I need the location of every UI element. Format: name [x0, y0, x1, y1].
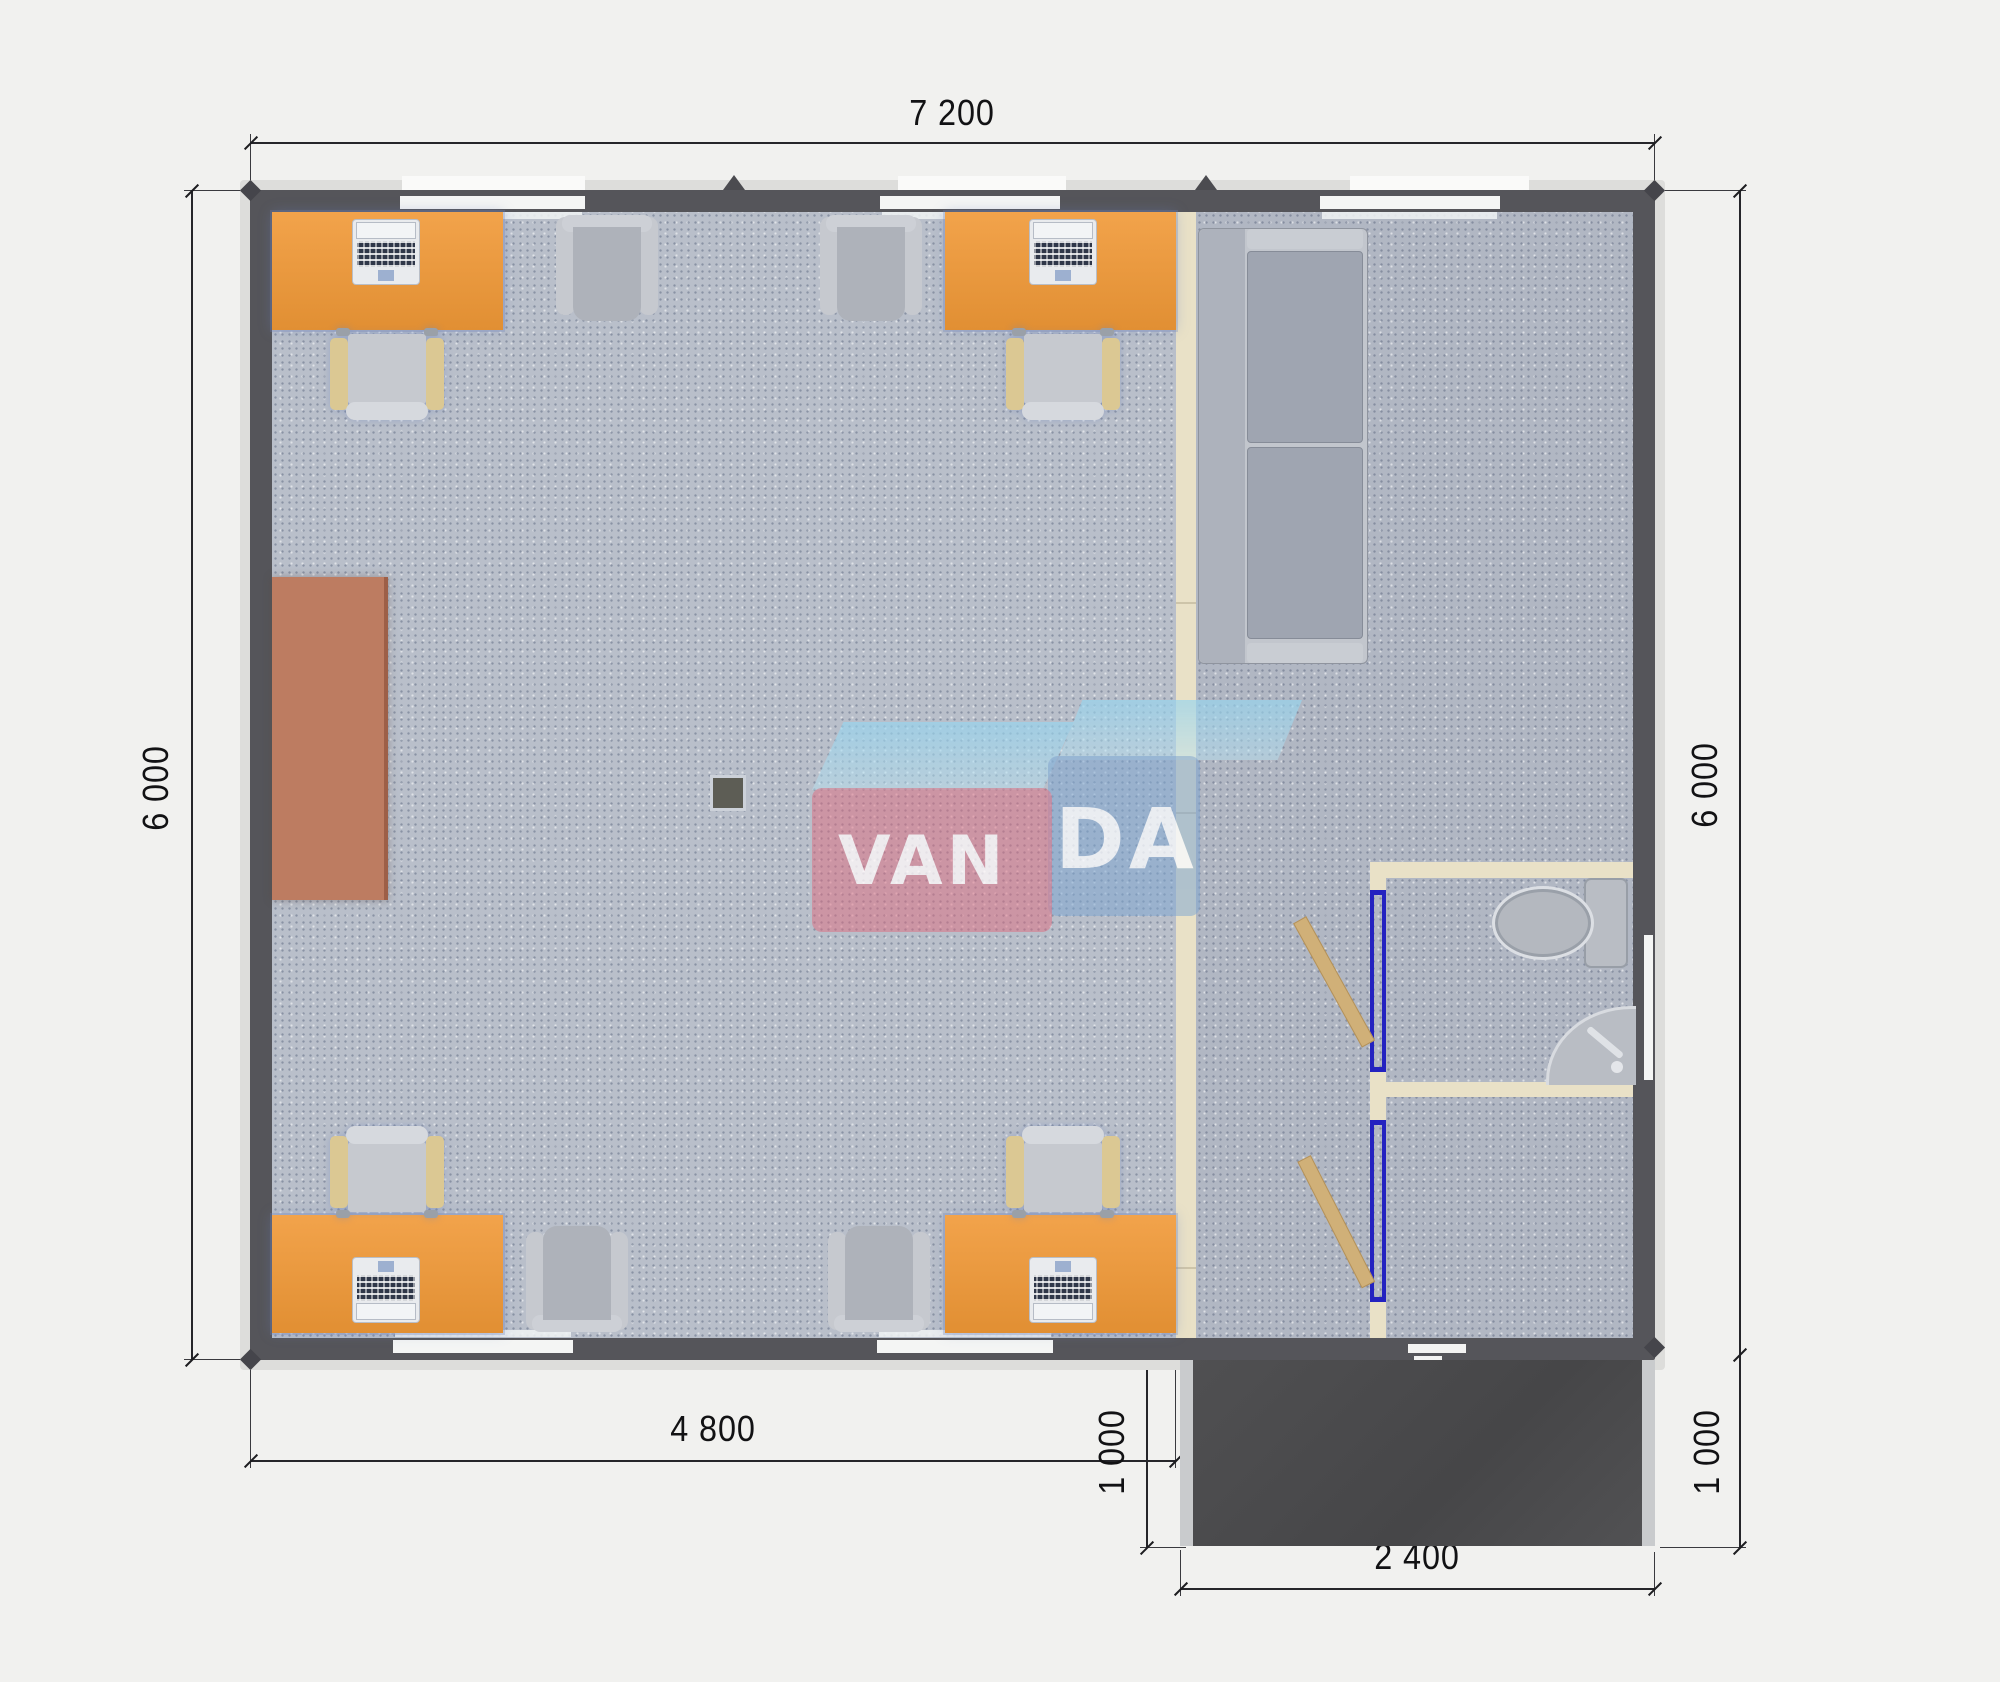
chair-arm — [1102, 338, 1120, 410]
panel-joint — [1176, 812, 1196, 814]
laptop-keyboard — [1034, 241, 1092, 267]
partition-wall-main — [1176, 212, 1196, 1338]
entrance-door-threshold — [1408, 1344, 1466, 1353]
bathroom-wall-top — [1370, 862, 1633, 878]
laptop-icon — [353, 1258, 419, 1322]
eave-highlight — [1350, 176, 1529, 190]
dim-label-office-width: 4 800 — [670, 1408, 756, 1450]
laptop-trackpad — [378, 270, 394, 281]
chair-arm — [426, 338, 444, 410]
faucet — [1586, 1026, 1624, 1060]
dim-line-top — [250, 142, 1655, 144]
laptop-icon — [353, 220, 419, 284]
extension-line — [1660, 1547, 1746, 1548]
door-frame-blue — [1370, 890, 1374, 1072]
armchair — [526, 1226, 628, 1332]
extension-line — [1175, 1366, 1176, 1468]
dim-label-porch-depth-right: 1 000 — [1686, 1409, 1728, 1495]
armchair — [820, 215, 922, 321]
window-sill — [1322, 212, 1497, 219]
laptop-screen — [1033, 1303, 1093, 1320]
caster — [424, 328, 438, 336]
dim-label-overall-width: 7 200 — [909, 92, 995, 134]
chair-back — [1022, 402, 1104, 420]
chair-arm — [1006, 1136, 1024, 1208]
caster — [1012, 1210, 1026, 1218]
extension-line — [1660, 190, 1746, 191]
desk-bottom-left — [272, 1215, 503, 1333]
door-frame-blue — [1382, 1120, 1386, 1302]
panel-joint — [1176, 602, 1196, 604]
dim-line-left — [191, 190, 193, 1360]
eave-highlight — [402, 176, 585, 190]
laptop-keyboard — [357, 241, 415, 267]
dim-label-right-height: 6 000 — [1684, 742, 1726, 828]
caster — [336, 328, 350, 336]
porch-edge — [1180, 1360, 1193, 1546]
office-chair — [322, 1126, 452, 1212]
laptop-keyboard — [1034, 1275, 1092, 1301]
dim-line-office-width — [250, 1460, 1176, 1462]
sofa-cushion — [1247, 447, 1363, 639]
chair-arm — [1006, 338, 1024, 410]
chair-seat — [348, 334, 426, 404]
office-chair — [998, 334, 1128, 420]
laptop-trackpad — [1055, 1261, 1071, 1272]
dim-line-right — [1739, 190, 1741, 1355]
chair-arm — [330, 338, 348, 410]
desk-bottom-right — [945, 1215, 1176, 1333]
sofa-back — [1199, 229, 1245, 663]
chair-back — [1022, 1126, 1104, 1144]
office-chair — [322, 334, 452, 420]
caster — [1100, 1210, 1114, 1218]
eave-highlight — [898, 176, 1066, 190]
extension-line — [250, 1366, 251, 1468]
caster — [336, 1210, 350, 1218]
laptop-trackpad — [378, 1261, 394, 1272]
porch-edge — [1642, 1360, 1655, 1546]
chair-seat — [1024, 334, 1102, 404]
dim-label-left-height: 6 000 — [135, 745, 177, 831]
entrance-porch — [1180, 1360, 1655, 1546]
dim-line-porch-width — [1180, 1588, 1655, 1590]
side-table — [272, 577, 388, 900]
door-frame-blue — [1382, 890, 1386, 1072]
dim-label-porch-depth-left: 1 000 — [1091, 1409, 1133, 1495]
floor-drain — [710, 775, 746, 811]
office-chair — [998, 1126, 1128, 1212]
chair-back — [346, 402, 428, 420]
window-bottom-2 — [877, 1340, 1053, 1353]
armchair-seat — [573, 227, 641, 321]
chair-seat — [1024, 1142, 1102, 1212]
armchair — [828, 1226, 930, 1332]
window-top-2 — [880, 196, 1060, 209]
caster — [1012, 328, 1026, 336]
laptop-screen — [356, 222, 416, 239]
laptop-icon — [1030, 220, 1096, 284]
laptop-keyboard — [357, 1275, 415, 1301]
armchair-seat — [543, 1226, 611, 1320]
laptop-trackpad — [1055, 270, 1071, 281]
window-top-1 — [400, 196, 585, 209]
sofa — [1198, 228, 1368, 664]
armchair — [556, 215, 658, 321]
desk-top-left — [272, 212, 503, 330]
laptop-icon — [1030, 1258, 1096, 1322]
sofa-armrest — [1247, 229, 1363, 249]
module-joint-arrow — [723, 175, 745, 190]
chair-seat — [348, 1142, 426, 1212]
laptop-screen — [1033, 222, 1093, 239]
armchair-seat — [845, 1226, 913, 1320]
caster — [1100, 328, 1114, 336]
laptop-screen — [356, 1303, 416, 1320]
panel-joint — [1176, 1267, 1196, 1269]
floor-plan-canvas: 7 200 6 000 6 000 1 000 4 800 1 000 2 40… — [0, 0, 2000, 1682]
window-top-3 — [1320, 196, 1500, 209]
chair-arm — [330, 1136, 348, 1208]
chair-back — [346, 1126, 428, 1144]
armchair-seat — [837, 227, 905, 321]
desk-top-right — [945, 212, 1176, 330]
caster — [424, 1210, 438, 1218]
module-joint-arrow — [1195, 175, 1217, 190]
chair-arm — [1102, 1136, 1120, 1208]
toilet-bowl — [1492, 886, 1594, 960]
window-bottom-1 — [393, 1340, 573, 1353]
dim-line-porch-left — [1146, 1360, 1148, 1548]
faucet-knob — [1611, 1061, 1623, 1073]
chair-arm — [426, 1136, 444, 1208]
window-right — [1644, 935, 1653, 1080]
dim-line-right-porch — [1739, 1355, 1741, 1548]
sofa-cushion — [1247, 251, 1363, 443]
sofa-armrest — [1247, 643, 1363, 663]
